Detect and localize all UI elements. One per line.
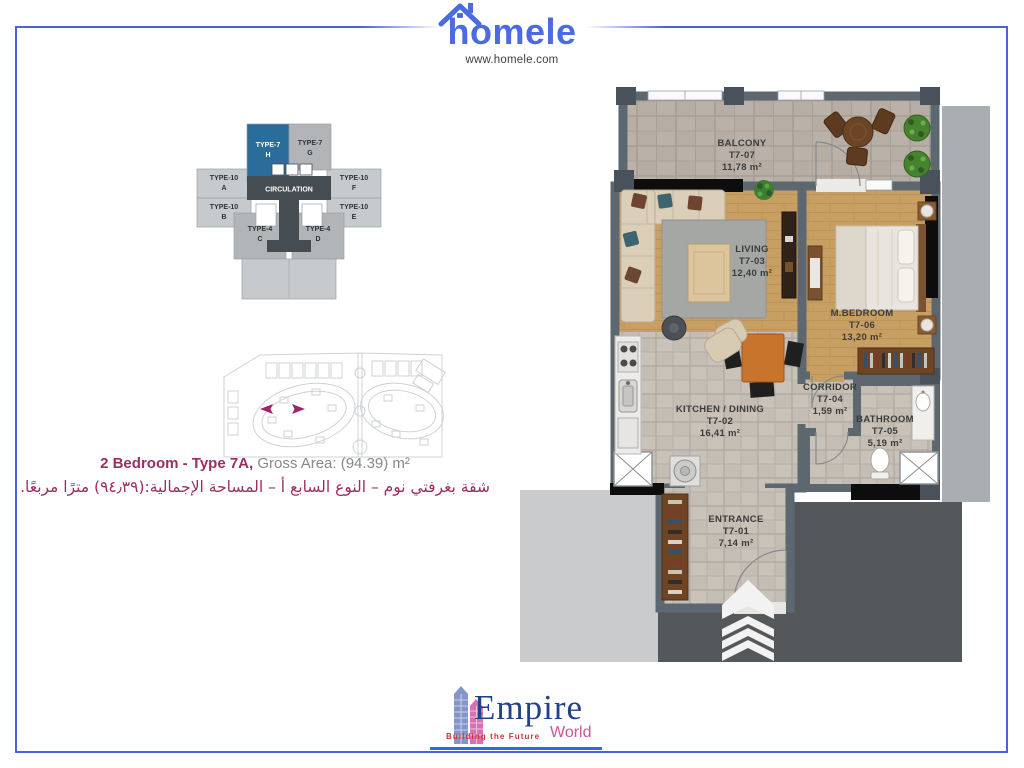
tv-unit — [782, 212, 796, 298]
svg-text:CORRIDOR: CORRIDOR — [803, 382, 857, 393]
svg-text:M.BEDROOM: M.BEDROOM — [831, 308, 894, 319]
house-roof-icon — [438, 0, 486, 28]
pillow — [898, 230, 914, 264]
svg-text:11,78 m²: 11,78 m² — [722, 162, 762, 173]
svg-text:T7-02: T7-02 — [707, 416, 733, 427]
developer-logo: Empire Building the Future World — [430, 682, 605, 754]
unit-label: C — [257, 236, 262, 243]
kitchen-counter — [615, 336, 641, 454]
unit-title-arabic: شقة بغرفتي نوم – النوع السابع أ – المساح… — [15, 478, 495, 496]
flyer-page: homele www.homele.com CIRCULATION — [0, 0, 1024, 768]
svg-text:13,20 m²: 13,20 m² — [842, 332, 882, 343]
unit-location-markers — [260, 404, 305, 414]
bed — [836, 224, 926, 312]
unit-label: F — [352, 185, 357, 192]
unit-label: TYPE-4 — [248, 226, 273, 233]
header: homele www.homele.com — [0, 13, 1024, 66]
wardrobe-entrance — [662, 494, 688, 600]
parking-rows — [266, 361, 422, 378]
floor-plan: BALCONY T7-07 11,78 m² LIVING T7-03 12,4… — [520, 86, 1012, 670]
svg-text:T7-04: T7-04 — [817, 394, 844, 405]
svg-text:1,59 m²: 1,59 m² — [813, 406, 848, 417]
svg-text:T7-03: T7-03 — [739, 256, 765, 267]
svg-text:T7-06: T7-06 — [849, 320, 875, 331]
unit-type-text: 2 Bedroom - Type 7A, — [100, 455, 253, 472]
circulation-label: CIRCULATION — [265, 187, 313, 194]
washing-machine — [670, 456, 700, 486]
unit-label: E — [352, 214, 357, 221]
unit-label: TYPE-10 — [340, 204, 369, 211]
svg-text:T7-07: T7-07 — [729, 150, 755, 161]
unit-label: A — [221, 185, 226, 192]
title-block: 2 Bedroom - Type 7A, Gross Area: (94.39)… — [15, 455, 495, 496]
wardrobe-bedroom — [858, 348, 934, 374]
svg-text:T7-01: T7-01 — [723, 526, 750, 537]
unit-title: 2 Bedroom - Type 7A, Gross Area: (94.39)… — [15, 455, 495, 472]
svg-text:ENTRANCE: ENTRANCE — [708, 514, 763, 525]
unit-label: TYPE-10 — [210, 175, 239, 182]
unit-label: TYPE-7 — [298, 140, 323, 147]
unit-label: D — [315, 236, 320, 243]
svg-text:KITCHEN / DINING: KITCHEN / DINING — [676, 404, 764, 415]
svg-text:16,41 m²: 16,41 m² — [700, 428, 740, 439]
developer-name: Empire — [474, 688, 583, 728]
adjacent-area-right — [942, 106, 990, 502]
key-plan: CIRCULATION TYPE-7 H TYPE-7 G TYPE-10 A … — [194, 112, 384, 304]
unit-label: TYPE-10 — [210, 204, 239, 211]
adjacent-unit-block — [520, 490, 658, 662]
developer-name-secondary: World — [550, 724, 592, 742]
svg-text:T7-05: T7-05 — [872, 426, 899, 437]
unit-type7-g — [289, 124, 331, 170]
svg-text:LIVING: LIVING — [735, 244, 768, 255]
unit-label: G — [307, 150, 313, 157]
unit-label: B — [221, 214, 226, 221]
unit-type10-f — [327, 169, 381, 198]
unit-label: H — [265, 152, 270, 159]
gross-area-text: Gross Area: (94.39) m² — [253, 455, 410, 472]
dresser — [808, 246, 822, 300]
unit-type10-a — [197, 169, 251, 198]
svg-text:BATHROOM: BATHROOM — [856, 414, 914, 425]
unit-label: TYPE-4 — [306, 226, 331, 233]
toilet — [871, 448, 889, 479]
unit-label: TYPE-10 — [340, 175, 369, 182]
svg-text:BALCONY: BALCONY — [717, 138, 766, 149]
svg-text:12,40 m²: 12,40 m² — [732, 268, 772, 279]
bathroom-vanity — [912, 386, 934, 440]
room-balcony-floor — [623, 96, 935, 186]
website-url: www.homele.com — [0, 54, 1024, 66]
footer-rule — [430, 747, 602, 750]
unit-label: TYPE-7 — [256, 142, 281, 149]
coffee-table — [688, 244, 730, 302]
pillow — [898, 268, 914, 302]
svg-text:5,19 m²: 5,19 m² — [868, 438, 903, 449]
developer-tagline: Building the Future — [446, 732, 540, 741]
plant-living — [754, 180, 774, 200]
site-plan — [220, 347, 446, 461]
svg-text:7,14 m²: 7,14 m² — [719, 538, 754, 549]
